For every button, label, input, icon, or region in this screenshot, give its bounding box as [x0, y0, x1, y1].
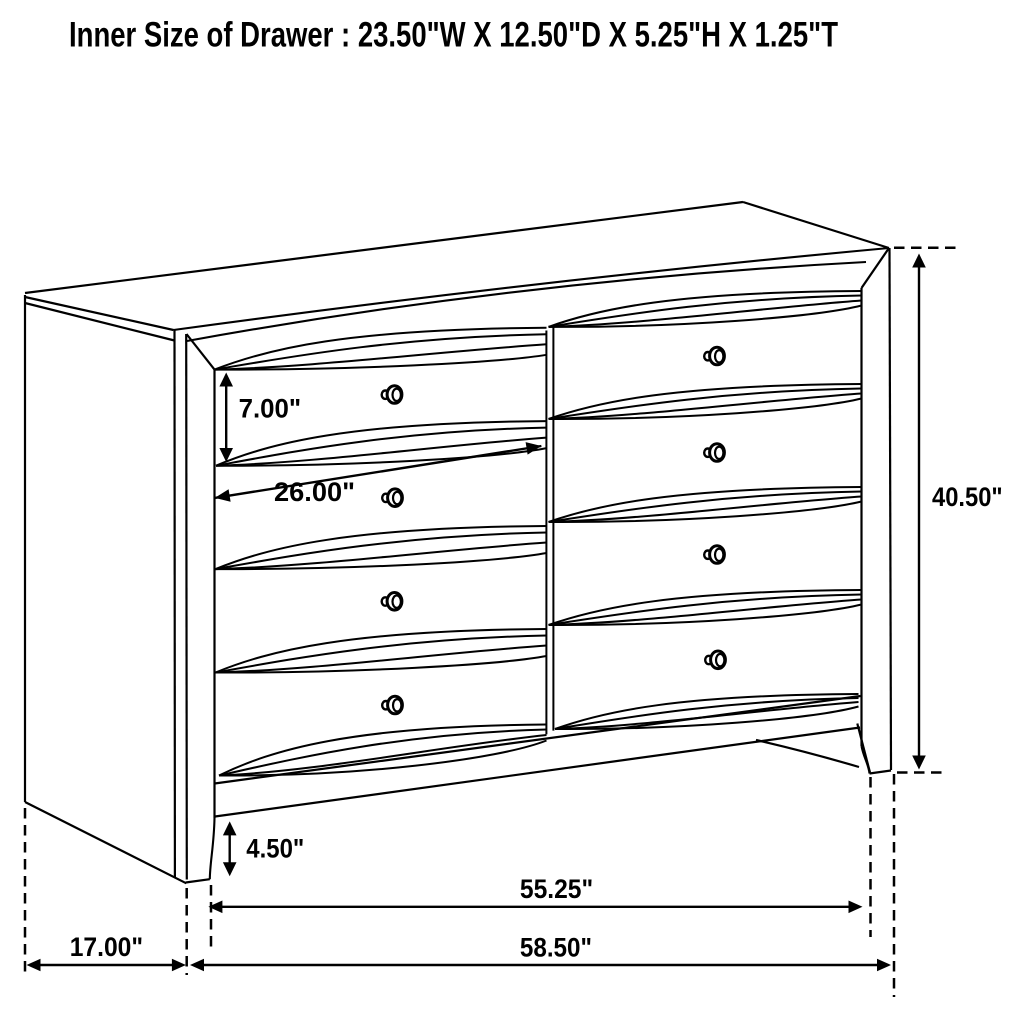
svg-text:55.25": 55.25" [520, 874, 593, 904]
svg-text:40.50": 40.50" [932, 482, 1003, 512]
svg-text:Inner Size of Drawer : 23.50"W: Inner Size of Drawer : 23.50"W X 12.50"D… [69, 15, 838, 54]
svg-text:58.50": 58.50" [520, 933, 592, 963]
svg-text:4.50": 4.50" [246, 834, 304, 864]
svg-text:7.00": 7.00" [239, 393, 302, 423]
svg-text:26.00": 26.00" [274, 477, 355, 507]
svg-text:17.00": 17.00" [70, 932, 143, 962]
